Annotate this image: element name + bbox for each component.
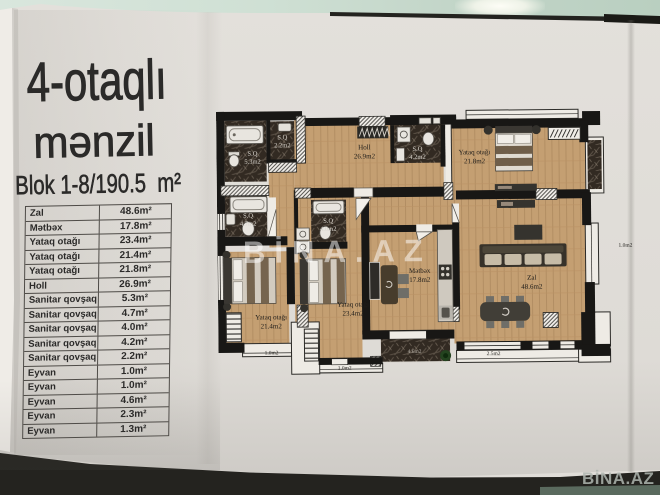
svg-text:S.Q: S.Q (323, 218, 333, 225)
svg-text:1.0m2: 1.0m2 (265, 350, 279, 356)
svg-text:Yataq otağı: Yataq otağı (337, 300, 369, 308)
svg-text:1.0m2: 1.0m2 (618, 243, 632, 249)
svg-text:21.4m2: 21.4m2 (261, 322, 283, 330)
svg-text:4.2m2: 4.2m2 (409, 154, 426, 161)
svg-text:48.6m2: 48.6m2 (521, 283, 543, 291)
svg-text:S.Q: S.Q (412, 146, 422, 153)
svg-text:Holl: Holl (358, 143, 371, 151)
svg-text:26.9m2: 26.9m2 (354, 152, 376, 160)
svg-text:4.7m2: 4.7m2 (240, 221, 257, 228)
svg-text:5.3m2: 5.3m2 (244, 159, 261, 166)
svg-text:23.4m2: 23.4m2 (342, 309, 364, 317)
svg-text:4.0m2: 4.0m2 (320, 226, 337, 233)
svg-text:1.0m2: 1.0m2 (338, 366, 352, 372)
svg-text:Yataq otağı: Yataq otağı (255, 313, 287, 321)
svg-text:2.2m2: 2.2m2 (274, 142, 291, 149)
svg-text:21.8m2: 21.8m2 (464, 157, 486, 165)
svg-text:S.Q: S.Q (243, 213, 253, 220)
svg-text:17.8m2: 17.8m2 (409, 276, 431, 284)
svg-text:4.6m2: 4.6m2 (408, 349, 422, 355)
svg-text:2.5m2: 2.5m2 (487, 351, 501, 357)
svg-text:Yataq otağı: Yataq otağı (459, 148, 491, 156)
svg-text:Zal: Zal (527, 274, 536, 282)
svg-text:S.Q: S.Q (277, 134, 287, 141)
svg-text:S.Q: S.Q (247, 151, 257, 158)
